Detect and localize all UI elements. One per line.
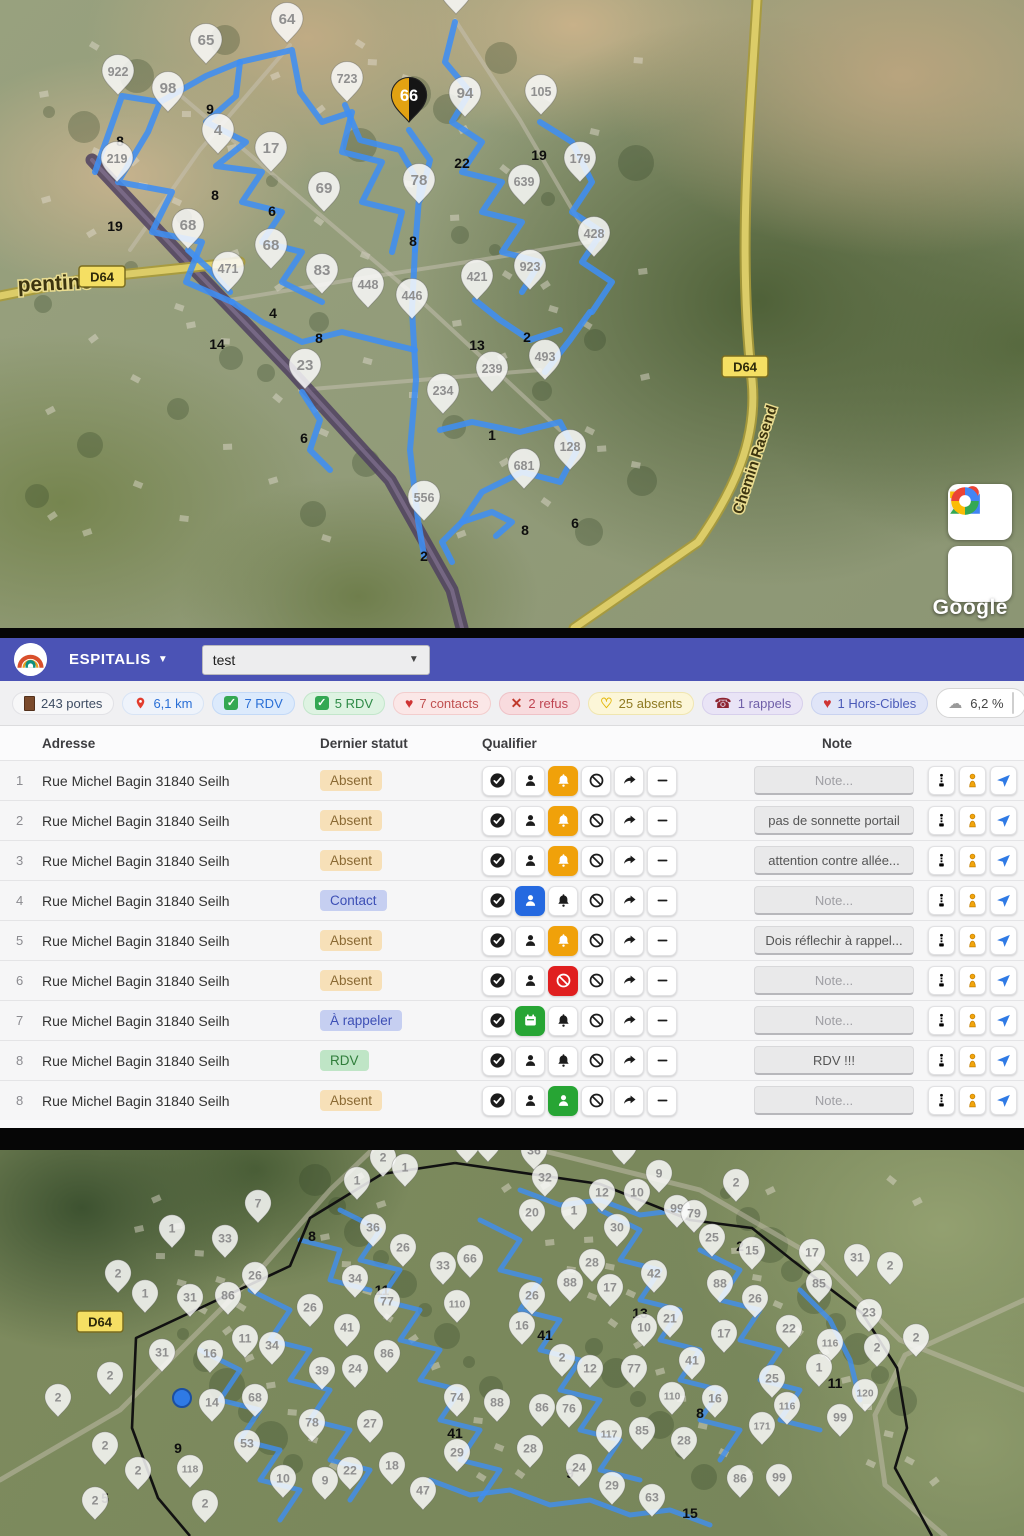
map-pin[interactable]: 16 bbox=[509, 1312, 535, 1345]
send-icon bbox=[995, 972, 1012, 989]
map-pin[interactable]: 76 bbox=[556, 1395, 582, 1428]
bell-icon bbox=[555, 932, 572, 949]
map-pin[interactable]: 446 bbox=[396, 279, 428, 320]
street-view-button[interactable] bbox=[959, 1006, 986, 1035]
stat-absents[interactable]: ♡25 absents bbox=[588, 692, 694, 715]
map-pin[interactable]: 88 bbox=[557, 1269, 583, 1302]
map-pin[interactable]: 11 bbox=[232, 1325, 258, 1358]
map-pin[interactable]: 65 bbox=[190, 24, 222, 65]
svg-text:2: 2 bbox=[874, 1340, 881, 1354]
send-icon bbox=[995, 852, 1012, 869]
street-view-button[interactable] bbox=[959, 886, 986, 915]
qualify-check-button[interactable] bbox=[482, 926, 512, 956]
qualify-check-button[interactable] bbox=[482, 886, 512, 916]
map-pin[interactable]: 31 bbox=[177, 1284, 203, 1317]
map-pin[interactable]: 118 bbox=[177, 1455, 203, 1488]
share-icon bbox=[621, 972, 638, 989]
map-pin[interactable]: 448 bbox=[352, 268, 384, 309]
map-pin[interactable]: 10 bbox=[270, 1465, 296, 1498]
map-pin[interactable]: 12 bbox=[589, 1179, 615, 1212]
route-button[interactable] bbox=[928, 806, 955, 835]
map-pin[interactable]: 29 bbox=[444, 1439, 470, 1472]
map-pin[interactable]: 21 bbox=[657, 1305, 683, 1338]
svg-text:17: 17 bbox=[717, 1326, 731, 1340]
navigate-button[interactable] bbox=[990, 846, 1017, 875]
bell-icon bbox=[555, 852, 572, 869]
phone-icon: ☎ bbox=[714, 696, 731, 710]
navigate-button[interactable] bbox=[990, 1046, 1017, 1075]
qualify-person-button[interactable] bbox=[515, 966, 545, 996]
qualify-person-button[interactable] bbox=[548, 1086, 578, 1116]
qualify-no-button[interactable] bbox=[581, 846, 611, 876]
row-address: Rue Michel Bagin 31840 Seilh bbox=[42, 853, 320, 869]
qualify-check-button[interactable] bbox=[482, 846, 512, 876]
qualify-no-button[interactable] bbox=[581, 806, 611, 836]
map-pin[interactable]: 1 bbox=[132, 1280, 158, 1313]
map-pin[interactable]: 2 bbox=[125, 1457, 151, 1490]
map-pin[interactable]: 923 bbox=[514, 250, 546, 291]
share-icon bbox=[621, 812, 638, 829]
send-icon bbox=[995, 1012, 1012, 1029]
qualify-person-button[interactable] bbox=[515, 1046, 545, 1076]
map-pin[interactable]: 239 bbox=[476, 352, 508, 393]
stat-rappels[interactable]: ☎1 rappels bbox=[702, 692, 803, 715]
note-input[interactable]: RDV !!! bbox=[754, 1046, 914, 1075]
map-pin[interactable]: 24 bbox=[342, 1355, 368, 1388]
share-icon bbox=[621, 852, 638, 869]
stat-km[interactable]: 6,1 km bbox=[122, 692, 204, 715]
qualify-minus-button[interactable] bbox=[647, 766, 677, 796]
map-pin[interactable]: 86 bbox=[374, 1340, 400, 1373]
qualify-person-button[interactable] bbox=[515, 766, 545, 796]
qualify-no-button[interactable] bbox=[581, 1046, 611, 1076]
route-icon bbox=[933, 852, 950, 869]
progress-label: 6,2 % bbox=[970, 696, 1003, 711]
route-button[interactable] bbox=[928, 966, 955, 995]
svg-text:2: 2 bbox=[202, 1496, 209, 1510]
map-pin[interactable]: 20 bbox=[519, 1199, 545, 1232]
pegman-icon bbox=[964, 852, 981, 869]
stat-progress: ☁6,2 % bbox=[936, 688, 1024, 718]
map-pin[interactable]: 34 bbox=[259, 1332, 285, 1365]
qualify-check-button[interactable] bbox=[482, 966, 512, 996]
map-pin[interactable]: 33 bbox=[430, 1252, 456, 1285]
qualify-share-button[interactable] bbox=[614, 1086, 644, 1116]
svg-text:22: 22 bbox=[782, 1321, 796, 1335]
map-pin[interactable]: 22 bbox=[776, 1315, 802, 1348]
route-button[interactable] bbox=[928, 1046, 955, 1075]
map-pin[interactable]: 128 bbox=[554, 430, 586, 471]
stat-refus[interactable]: ✕2 refus bbox=[499, 692, 580, 715]
qualify-no-button[interactable] bbox=[581, 1006, 611, 1036]
minus-icon bbox=[654, 892, 671, 909]
stat-label: 1 Hors-Cibles bbox=[838, 696, 917, 711]
route-select[interactable]: test ▼ bbox=[202, 645, 430, 675]
map-pin[interactable]: 64 bbox=[271, 3, 303, 44]
qualify-minus-button[interactable] bbox=[647, 886, 677, 916]
svg-text:86: 86 bbox=[221, 1288, 235, 1302]
svg-text:25: 25 bbox=[765, 1371, 779, 1385]
map-pin[interactable]: 1 bbox=[392, 1154, 418, 1187]
map-pin[interactable]: 428 bbox=[578, 217, 610, 258]
map-pin[interactable]: 2 bbox=[97, 1362, 123, 1395]
street-view-button[interactable] bbox=[959, 846, 986, 875]
map-pin[interactable]: 9 bbox=[475, 1150, 501, 1162]
map-pin[interactable]: 86 bbox=[727, 1465, 753, 1498]
svg-text:7: 7 bbox=[255, 1196, 262, 1210]
table-row: 4Rue Michel Bagin 31840 SeilhContactNote… bbox=[0, 880, 1024, 920]
map-pin[interactable]: 234 bbox=[427, 374, 459, 415]
map-pin[interactable]: 110 bbox=[444, 1290, 470, 1323]
map-pin[interactable]: 27 bbox=[357, 1410, 383, 1443]
qualify-person-button[interactable] bbox=[515, 926, 545, 956]
qualify-check-button[interactable] bbox=[482, 1046, 512, 1076]
map-pin[interactable]: 26 bbox=[742, 1285, 768, 1318]
map-pin[interactable]: 42 bbox=[641, 1260, 667, 1293]
navigate-button[interactable] bbox=[990, 1086, 1017, 1115]
map-pin[interactable]: 2 bbox=[192, 1490, 218, 1523]
svg-text:1: 1 bbox=[402, 1160, 409, 1174]
note-input[interactable]: Note... bbox=[754, 1086, 914, 1115]
house-number-label: 15 bbox=[682, 1505, 698, 1521]
map-pin[interactable]: 17 bbox=[711, 1320, 737, 1353]
street-view-button[interactable] bbox=[959, 1046, 986, 1075]
qualify-bell-button[interactable] bbox=[548, 806, 578, 836]
map-pin[interactable]: 120 bbox=[852, 1379, 878, 1412]
note-input[interactable]: Note... bbox=[754, 886, 914, 915]
map-pin[interactable]: 117 bbox=[596, 1420, 622, 1453]
map-pin[interactable]: 2 bbox=[877, 1252, 903, 1285]
svg-text:77: 77 bbox=[627, 1361, 641, 1375]
qualify-person-button[interactable] bbox=[515, 886, 545, 916]
route-button[interactable] bbox=[928, 846, 955, 875]
svg-text:1: 1 bbox=[354, 1173, 361, 1187]
svg-text:116: 116 bbox=[822, 1338, 839, 1349]
col-note: Note bbox=[754, 736, 920, 751]
map-pin[interactable]: 18 bbox=[379, 1452, 405, 1485]
map-pin[interactable]: 1 bbox=[159, 1215, 185, 1248]
route-button[interactable] bbox=[928, 766, 955, 795]
house-number-label: 6 bbox=[268, 203, 276, 219]
pegman-icon bbox=[964, 1052, 981, 1069]
svg-text:69: 69 bbox=[316, 180, 333, 197]
map-top-canvas[interactable]: pentineChemin Rasend98861922198144813261… bbox=[0, 0, 1024, 628]
map-pin[interactable]: 99 bbox=[766, 1464, 792, 1497]
row-number: 5 bbox=[16, 933, 42, 948]
qualify-share-button[interactable] bbox=[614, 926, 644, 956]
map-pin[interactable]: 66 bbox=[457, 1245, 483, 1278]
map-pin[interactable]: 10 bbox=[624, 1179, 650, 1212]
map-pin[interactable]: 31 bbox=[844, 1244, 870, 1277]
svg-text:68: 68 bbox=[180, 217, 197, 234]
street-view-button[interactable] bbox=[959, 766, 986, 795]
qualify-person-button[interactable] bbox=[515, 1086, 545, 1116]
map-pin[interactable]: 41 bbox=[334, 1314, 360, 1347]
person-icon bbox=[522, 852, 539, 869]
svg-text:23: 23 bbox=[297, 357, 314, 374]
route-button[interactable] bbox=[928, 926, 955, 955]
qualify-minus-button[interactable] bbox=[647, 1086, 677, 1116]
map-pin[interactable]: 26 bbox=[390, 1234, 416, 1267]
house-number-label: 8 bbox=[409, 233, 417, 249]
google-maps-app-button[interactable] bbox=[948, 546, 1012, 602]
qualify-no-button[interactable] bbox=[581, 966, 611, 996]
qualify-person-button[interactable] bbox=[515, 806, 545, 836]
navigate-button[interactable] bbox=[990, 926, 1017, 955]
map-pin[interactable]: 24 bbox=[566, 1454, 592, 1487]
svg-text:2: 2 bbox=[55, 1390, 62, 1404]
cloud-icon: ☁ bbox=[948, 696, 962, 710]
map-pin[interactable]: 17 bbox=[255, 132, 287, 173]
pegman-icon bbox=[964, 932, 981, 949]
qualify-share-button[interactable] bbox=[614, 846, 644, 876]
stat-contacts[interactable]: ♥7 contacts bbox=[393, 692, 491, 715]
navigate-button[interactable] bbox=[990, 806, 1017, 835]
map-pin[interactable]: 2 bbox=[82, 1487, 108, 1520]
svg-text:83: 83 bbox=[314, 262, 331, 279]
svg-text:D64: D64 bbox=[90, 270, 115, 285]
street-view-button[interactable] bbox=[959, 966, 986, 995]
street-view-button[interactable] bbox=[959, 926, 986, 955]
table-row: 8Rue Michel Bagin 31840 SeilhAbsentNote.… bbox=[0, 1080, 1024, 1120]
house-number-label: 2 bbox=[420, 548, 428, 564]
qualify-check-button[interactable] bbox=[482, 1006, 512, 1036]
map-pin[interactable]: 2 bbox=[105, 1260, 131, 1293]
house-number-label: 8 bbox=[315, 330, 323, 346]
no-icon bbox=[588, 812, 605, 829]
map-pin[interactable]: 68 bbox=[255, 229, 287, 270]
table-row: 3Rue Michel Bagin 31840 SeilhAbsentatten… bbox=[0, 840, 1024, 880]
map-pin[interactable]: 28 bbox=[517, 1435, 543, 1468]
svg-text:26: 26 bbox=[748, 1291, 762, 1305]
qualify-check-button[interactable] bbox=[482, 806, 512, 836]
table-row: 6Rue Michel Bagin 31840 SeilhAbsentNote.… bbox=[0, 960, 1024, 1000]
map-pin-icon bbox=[134, 696, 147, 710]
brand-caret-icon[interactable]: ▼ bbox=[158, 654, 168, 665]
qualify-check-button[interactable] bbox=[482, 766, 512, 796]
map-pin[interactable]: 639 bbox=[508, 165, 540, 206]
qualify-minus-button[interactable] bbox=[647, 926, 677, 956]
qualify-cal-button[interactable] bbox=[515, 1006, 545, 1036]
map-pin[interactable]: 47 bbox=[410, 1477, 436, 1510]
bell-icon bbox=[555, 892, 572, 909]
qualify-bell-button[interactable] bbox=[548, 886, 578, 916]
map-pin[interactable]: 171 bbox=[749, 1412, 775, 1445]
stat-hors-cibles[interactable]: ♥1 Hors-Cibles bbox=[811, 692, 928, 715]
svg-text:99: 99 bbox=[833, 1410, 847, 1424]
map-pin[interactable]: 86 bbox=[529, 1394, 555, 1427]
svg-text:36: 36 bbox=[366, 1220, 380, 1234]
map-pin[interactable]: 7 bbox=[245, 1190, 271, 1223]
navigate-button[interactable] bbox=[990, 766, 1017, 795]
brand-name[interactable]: ESPITALIS bbox=[69, 651, 151, 668]
row-address: Rue Michel Bagin 31840 Seilh bbox=[42, 973, 320, 989]
svg-text:15: 15 bbox=[745, 1243, 759, 1257]
qualify-person-button[interactable] bbox=[515, 846, 545, 876]
note-input[interactable]: Note... bbox=[754, 766, 914, 795]
map-pin[interactable]: 9 bbox=[312, 1467, 338, 1500]
svg-text:16: 16 bbox=[708, 1391, 722, 1405]
map-pin[interactable]: 85 bbox=[629, 1417, 655, 1450]
map-pin[interactable]: 77 bbox=[374, 1288, 400, 1321]
map-pin[interactable]: 76 bbox=[454, 1150, 480, 1163]
svg-text:64: 64 bbox=[279, 11, 296, 28]
svg-text:88: 88 bbox=[563, 1275, 577, 1289]
map-pin[interactable]: 110 bbox=[659, 1382, 685, 1415]
svg-text:2: 2 bbox=[102, 1438, 109, 1452]
house-number-label: 8 bbox=[696, 1405, 704, 1421]
svg-text:31: 31 bbox=[850, 1250, 864, 1264]
map-pin[interactable]: 33 bbox=[212, 1225, 238, 1258]
map-pin[interactable]: 1 bbox=[561, 1197, 587, 1230]
qualify-share-button[interactable] bbox=[614, 886, 644, 916]
stat-portes[interactable]: 243 portes bbox=[12, 692, 114, 715]
map-pin[interactable]: 493 bbox=[529, 340, 561, 381]
qualify-bell-button[interactable] bbox=[548, 1006, 578, 1036]
qualify-share-button[interactable] bbox=[614, 1006, 644, 1036]
espitalis-app: pentineChemin Rasend98861922198144813261… bbox=[0, 0, 1024, 1536]
qualify-bell-button[interactable] bbox=[548, 1046, 578, 1076]
qualify-minus-button[interactable] bbox=[647, 806, 677, 836]
note-input[interactable]: attention contre allée... bbox=[754, 846, 914, 875]
map-pin[interactable]: 723 bbox=[331, 62, 363, 103]
selected-map-pin[interactable]: 66 bbox=[391, 77, 426, 122]
qualify-bell-button[interactable] bbox=[548, 926, 578, 956]
route-button[interactable] bbox=[928, 1006, 955, 1035]
map-pin[interactable]: 2 bbox=[92, 1432, 118, 1465]
route-line bbox=[430, 1480, 710, 1525]
map-pin[interactable]: 23 bbox=[856, 1299, 882, 1332]
map-pin[interactable]: 2 bbox=[45, 1384, 71, 1417]
map-pin[interactable]: 86 bbox=[440, 0, 472, 14]
map-pin[interactable]: 28 bbox=[671, 1427, 697, 1460]
qualify-no-button[interactable] bbox=[581, 886, 611, 916]
svg-text:9: 9 bbox=[322, 1473, 329, 1487]
street-view-button[interactable] bbox=[959, 806, 986, 835]
street-view-button[interactable] bbox=[959, 1086, 986, 1115]
svg-text:85: 85 bbox=[635, 1423, 649, 1437]
navigate-button[interactable] bbox=[990, 1006, 1017, 1035]
qualify-bell-button[interactable] bbox=[548, 846, 578, 876]
map-bottom-canvas[interactable]: 9581113241811915419762362193212121079912… bbox=[0, 1150, 1024, 1536]
qualify-share-button[interactable] bbox=[614, 806, 644, 836]
status-badge: Absent bbox=[320, 930, 382, 951]
row-number: 2 bbox=[16, 813, 42, 828]
row-number: 8 bbox=[16, 1093, 42, 1108]
map-pin[interactable]: 78 bbox=[403, 164, 435, 205]
map-pin[interactable]: 29 bbox=[599, 1472, 625, 1505]
map-pin[interactable]: 78 bbox=[299, 1409, 325, 1442]
svg-text:16: 16 bbox=[203, 1346, 217, 1360]
qualify-minus-button[interactable] bbox=[647, 846, 677, 876]
minus-icon bbox=[654, 1012, 671, 1029]
map-pin[interactable]: 2 bbox=[864, 1334, 890, 1367]
qualify-no-button[interactable] bbox=[581, 766, 611, 796]
svg-text:10: 10 bbox=[630, 1185, 644, 1199]
stats-bar: 243 portes6,1 km✓7 RDV✓5 RDV♥7 contacts✕… bbox=[0, 681, 1024, 726]
qualify-minus-button[interactable] bbox=[647, 966, 677, 996]
map-pin[interactable]: 30 bbox=[604, 1214, 630, 1247]
svg-text:1: 1 bbox=[169, 1221, 176, 1235]
status-badge: Absent bbox=[320, 770, 382, 791]
satellite-map-bottom[interactable]: 9581113241811915419762362193212121079912… bbox=[0, 1150, 1024, 1536]
map-pin[interactable]: 681 bbox=[508, 449, 540, 490]
qualify-no-button[interactable] bbox=[548, 966, 578, 996]
map-pin[interactable]: 88 bbox=[707, 1270, 733, 1303]
qualify-share-button[interactable] bbox=[614, 966, 644, 996]
note-input[interactable]: Note... bbox=[754, 966, 914, 995]
stat-rdv-blue[interactable]: ✓7 RDV bbox=[212, 692, 294, 715]
qualify-share-button[interactable] bbox=[614, 1046, 644, 1076]
svg-text:2: 2 bbox=[135, 1463, 142, 1477]
map-pin[interactable]: 32 bbox=[532, 1164, 558, 1197]
map-pin[interactable]: 26 bbox=[242, 1262, 268, 1295]
map-pin[interactable]: 99 bbox=[827, 1404, 853, 1437]
row-address: Rue Michel Bagin 31840 Seilh bbox=[42, 1053, 320, 1069]
qualify-no-button[interactable] bbox=[581, 926, 611, 956]
map-pin[interactable]: 421 bbox=[461, 260, 493, 301]
navigate-button[interactable] bbox=[990, 886, 1017, 915]
map-pin[interactable]: 88 bbox=[484, 1389, 510, 1422]
route-button[interactable] bbox=[928, 1086, 955, 1115]
map-pin[interactable]: 10 bbox=[631, 1314, 657, 1347]
svg-text:86: 86 bbox=[535, 1400, 549, 1414]
stat-label: 6,1 km bbox=[153, 696, 192, 711]
map-pin[interactable]: 15 bbox=[739, 1237, 765, 1270]
map-pin[interactable]: 2 bbox=[611, 1150, 637, 1165]
svg-text:681: 681 bbox=[514, 459, 535, 473]
status-badge: Absent bbox=[320, 1090, 382, 1111]
svg-text:31: 31 bbox=[183, 1290, 197, 1304]
pegman-icon bbox=[964, 1092, 981, 1109]
map-pin[interactable]: 12 bbox=[577, 1355, 603, 1388]
svg-text:32: 32 bbox=[538, 1170, 552, 1184]
svg-text:556: 556 bbox=[414, 491, 435, 505]
map-pin[interactable]: 26 bbox=[297, 1294, 323, 1327]
map-pin[interactable]: 105 bbox=[525, 75, 557, 116]
route-line bbox=[475, 300, 560, 340]
qualify-check-button[interactable] bbox=[482, 1086, 512, 1116]
qualify-minus-button[interactable] bbox=[647, 1046, 677, 1076]
qualify-share-button[interactable] bbox=[614, 766, 644, 796]
map-pin[interactable]: 17 bbox=[597, 1274, 623, 1307]
qualify-minus-button[interactable] bbox=[647, 1006, 677, 1036]
map-pin[interactable]: 14 bbox=[199, 1389, 225, 1422]
house-number-label: 13 bbox=[469, 337, 485, 353]
note-input[interactable]: pas de sonnette portail bbox=[754, 806, 914, 835]
house-number-label: 19 bbox=[531, 147, 547, 163]
map-pin[interactable]: 53 bbox=[234, 1430, 260, 1463]
share-icon bbox=[621, 772, 638, 789]
stat-rdv-green[interactable]: ✓5 RDV bbox=[303, 692, 385, 715]
note-input[interactable]: Dois réflechir à rappel... bbox=[754, 926, 914, 955]
qualify-bell-button[interactable] bbox=[548, 766, 578, 796]
svg-text:42: 42 bbox=[647, 1266, 661, 1280]
navigate-button[interactable] bbox=[990, 966, 1017, 995]
person-icon bbox=[522, 972, 539, 989]
route-button[interactable] bbox=[928, 886, 955, 915]
svg-text:116: 116 bbox=[779, 1401, 796, 1412]
qualify-no-button[interactable] bbox=[581, 1086, 611, 1116]
svg-text:4: 4 bbox=[214, 122, 223, 139]
note-input[interactable]: Note... bbox=[754, 1006, 914, 1035]
route-icon bbox=[933, 772, 950, 789]
heart-icon: ♥ bbox=[823, 696, 831, 710]
satellite-map-top[interactable]: pentineChemin Rasend98861922198144813261… bbox=[0, 0, 1024, 628]
map-pin[interactable]: 31 bbox=[149, 1339, 175, 1372]
bell-icon bbox=[555, 812, 572, 829]
status-badge: Absent bbox=[320, 970, 382, 991]
